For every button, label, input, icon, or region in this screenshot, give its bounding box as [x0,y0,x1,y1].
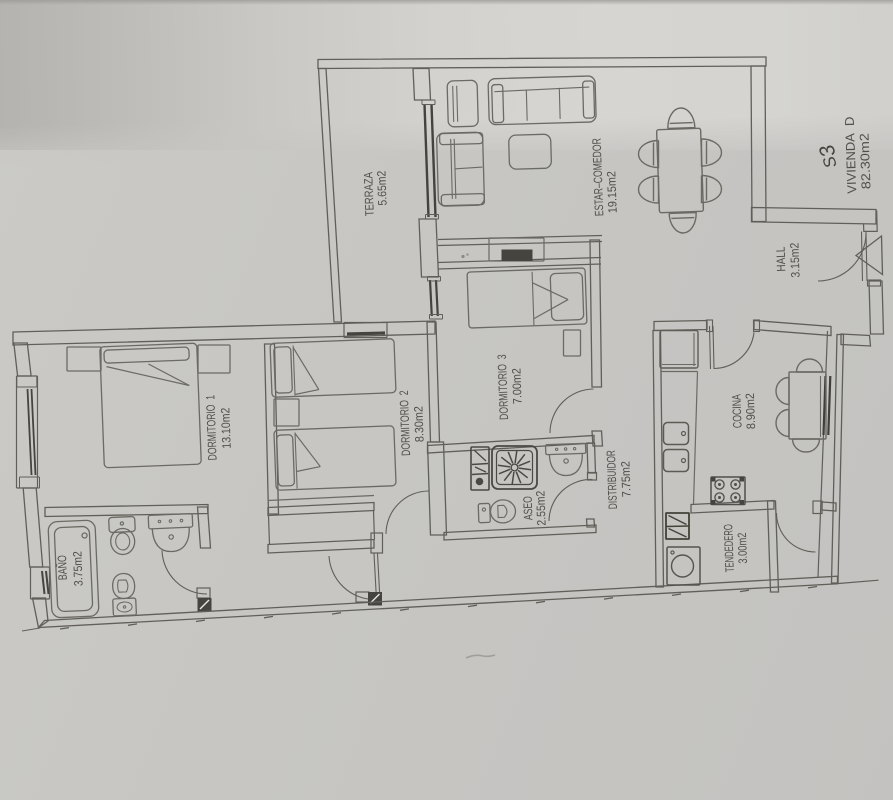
svg-text:S3: S3 [815,141,844,170]
svg-text:82.30m2: 82.30m2 [857,133,874,189]
svg-text:HALL: HALL [774,246,789,272]
svg-text:BAÑO: BAÑO [55,555,70,580]
svg-text:8.30m2: 8.30m2 [411,406,426,443]
svg-text:3.00m2: 3.00m2 [735,532,750,564]
svg-text:TENDEDERO: TENDEDERO [721,524,737,572]
svg-text:8.90m2: 8.90m2 [743,393,758,430]
svg-text:3.15m2: 3.15m2 [787,242,802,278]
svg-text:DORMITORIO 3: DORMITORIO 3 [495,354,511,420]
svg-text:DORMITORIO 2: DORMITORIO 2 [397,390,413,456]
svg-text:DISTRIBUIDOR: DISTRIBUIDOR [604,450,620,510]
svg-text:7.75m2: 7.75m2 [618,461,633,498]
svg-text:19.15m2: 19.15m2 [604,171,619,214]
svg-text:5.65m2: 5.65m2 [374,170,389,206]
svg-text:13.10m2: 13.10m2 [218,407,233,449]
svg-text:7.00m2: 7.00m2 [509,368,524,405]
svg-text:3.75m2: 3.75m2 [70,551,85,587]
svg-text:2.55m2: 2.55m2 [533,490,548,526]
svg-text:DORMITORIO 1: DORMITORIO 1 [203,395,219,461]
